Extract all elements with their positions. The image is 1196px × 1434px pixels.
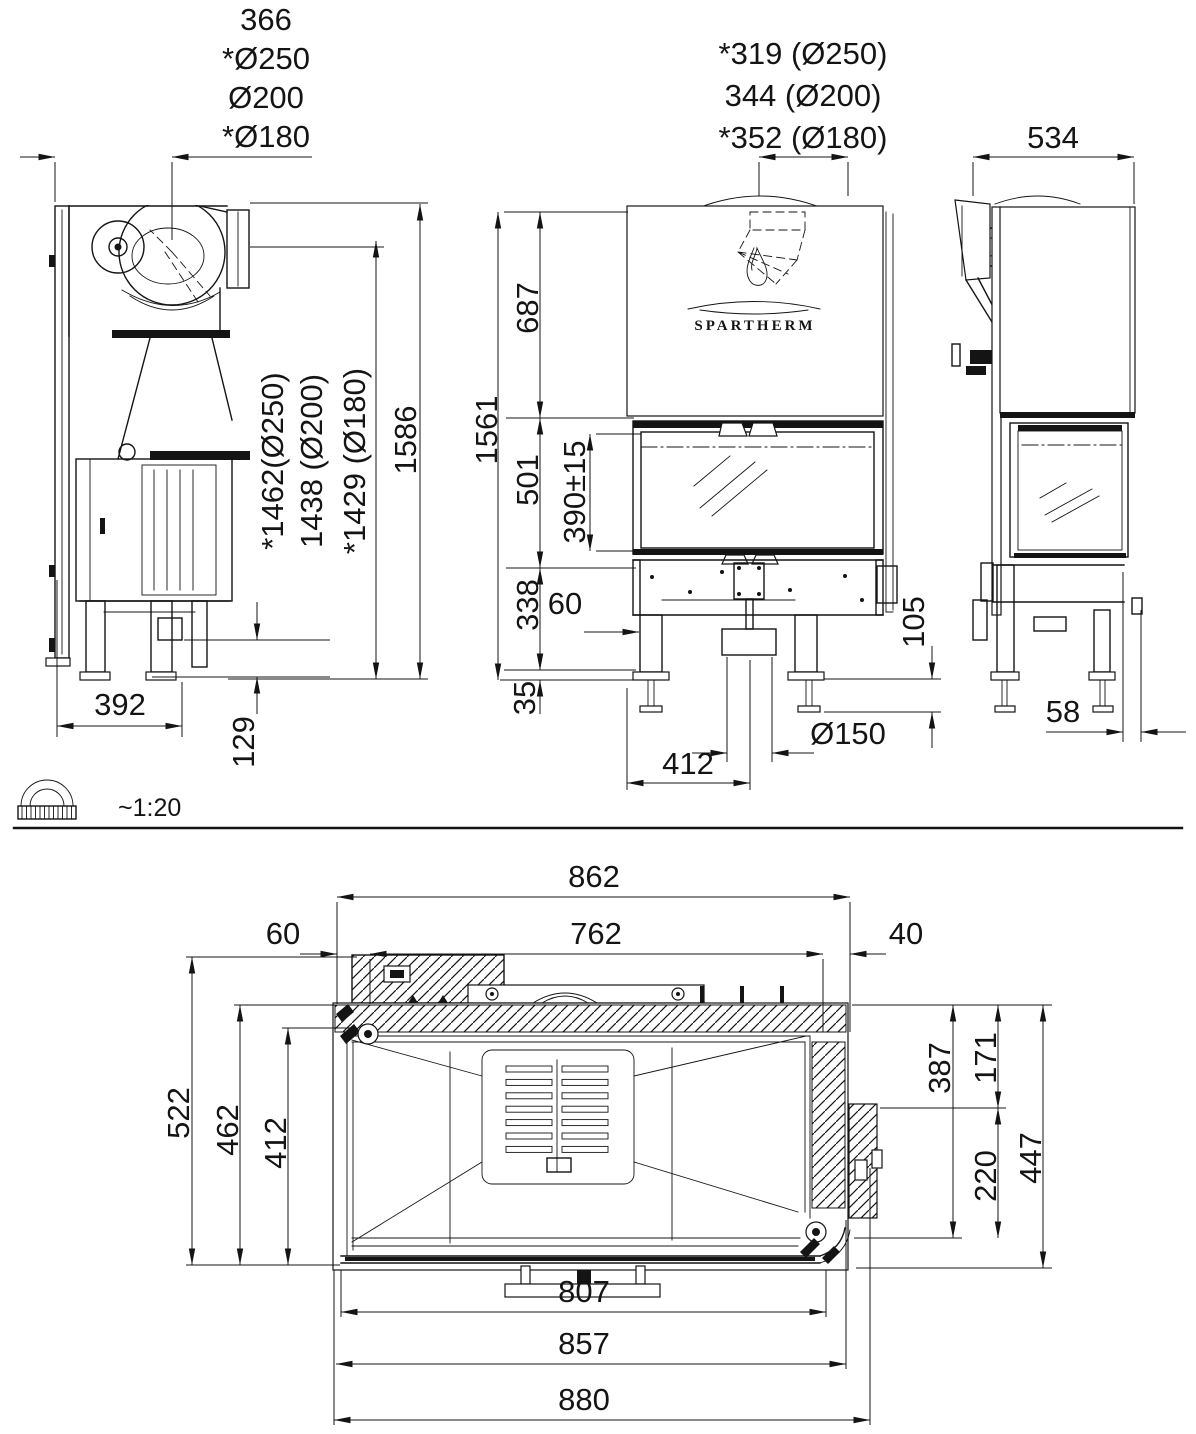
dim-door-height-501: 501 xyxy=(510,454,545,506)
dim-floor-clearance-35: 35 xyxy=(507,681,542,715)
dim-outer-width-862: 862 xyxy=(568,859,620,894)
plan-view xyxy=(333,955,882,1297)
right-side-view xyxy=(952,196,1142,712)
fireplace-dimension-drawing: 366 *Ø250 Ø200 *Ø180 *1462(Ø250) 1438 (Ø… xyxy=(0,0,1196,1434)
dim-glass-width-807: 807 xyxy=(558,1274,610,1309)
scale-indicator: ~1:20 xyxy=(18,780,181,822)
dim-flue-offset-d180: *Ø180 xyxy=(222,119,310,154)
dim-front-flue-offset-d200: 344 (Ø200) xyxy=(725,78,882,113)
dim-leg-inset-60: 60 xyxy=(548,586,582,621)
dim-glass-height-390: 390±15 xyxy=(557,440,592,543)
dim-overall-height-1586: 1586 xyxy=(388,406,423,475)
side-door-panel xyxy=(849,1104,882,1218)
dim-base-depth-392: 392 xyxy=(94,687,146,722)
dim-inner-width-762: 762 xyxy=(570,916,622,951)
side-view xyxy=(46,168,250,680)
dim-rear-foot-offset-58: 58 xyxy=(1046,694,1080,729)
dim-flue-height-d200: 1438 (Ø200) xyxy=(294,374,329,548)
dim-right-depth-220: 220 xyxy=(968,1150,1003,1202)
brand-name: SPARTHERM xyxy=(694,318,815,334)
dim-flue-offset-366: 366 xyxy=(240,2,292,37)
dim-flue-offset-d200: Ø200 xyxy=(228,80,304,115)
dim-right-depth-387: 387 xyxy=(922,1042,957,1094)
dim-right-depth-171: 171 xyxy=(968,1032,1003,1084)
dim-flue-height-d180: *1429 (Ø180) xyxy=(337,368,372,554)
dim-inner-depth-462: 462 xyxy=(210,1104,245,1156)
dim-front-flue-offset-d180: *352 (Ø180) xyxy=(719,120,888,155)
technical-drawing-page: 366 *Ø250 Ø200 *Ø180 *1462(Ø250) 1438 (Ø… xyxy=(0,0,1196,1434)
dim-depth-534: 534 xyxy=(1027,120,1079,155)
dim-front-flue-offset-d250: *319 (Ø250) xyxy=(719,36,888,71)
dim-left-offset-60: 60 xyxy=(266,916,300,951)
dim-overall-height-1561: 1561 xyxy=(469,396,504,465)
dim-body-width-857: 857 xyxy=(558,1326,610,1361)
dim-right-offset-40: 40 xyxy=(889,916,923,951)
scale-note: ~1:20 xyxy=(118,794,181,822)
dim-max-width-880: 880 xyxy=(558,1382,610,1417)
dim-upper-height-687: 687 xyxy=(510,282,545,334)
dim-base-height-338: 338 xyxy=(510,579,545,631)
dim-air-inlet-offset-412: 412 xyxy=(662,746,714,781)
dim-leg-adjust-105: 105 xyxy=(896,596,931,648)
dim-base-clearance-129: 129 xyxy=(226,716,261,768)
front-view: SPARTHERM xyxy=(627,196,897,712)
dim-flue-offset-d250: *Ø250 xyxy=(222,41,310,76)
dim-firebox-depth-412: 412 xyxy=(258,1117,293,1169)
dim-right-depth-total-447: 447 xyxy=(1013,1132,1048,1184)
dim-air-inlet-d150: Ø150 xyxy=(810,716,886,751)
dim-flue-height-d250: *1462(Ø250) xyxy=(255,372,290,550)
dim-total-depth-522: 522 xyxy=(161,1087,196,1139)
